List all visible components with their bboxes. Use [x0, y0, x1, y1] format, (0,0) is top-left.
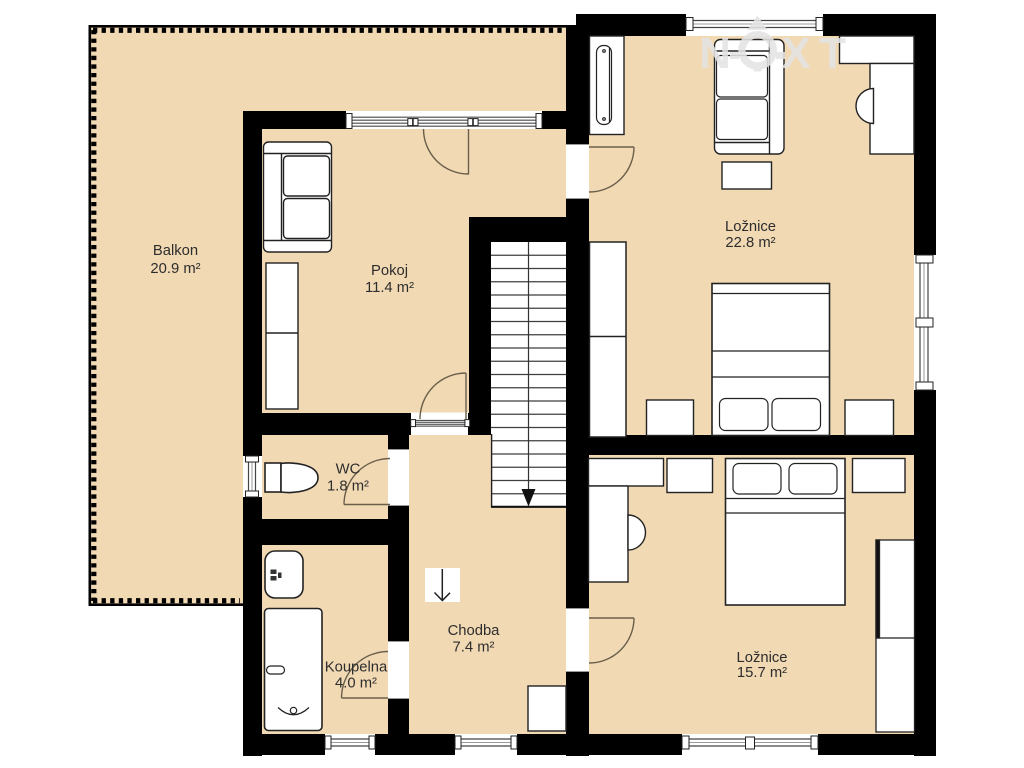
svg-text:Chodba: Chodba [448, 623, 501, 639]
svg-text:4.0 m²: 4.0 m² [335, 676, 377, 692]
svg-text:1.8 m²: 1.8 m² [327, 479, 369, 495]
svg-text:WC: WC [336, 462, 361, 478]
svg-text:N: N [699, 29, 731, 78]
svg-text:22.8 m²: 22.8 m² [725, 235, 775, 251]
svg-text:Ložnice: Ložnice [725, 219, 776, 235]
svg-text:Balkon: Balkon [153, 243, 198, 259]
svg-text:7.4 m²: 7.4 m² [453, 640, 495, 656]
svg-text:Koupelna: Koupelna [325, 660, 388, 676]
svg-text:Ložnice: Ložnice [736, 650, 787, 666]
svg-text:X: X [781, 29, 810, 78]
svg-text:15.7 m²: 15.7 m² [737, 665, 787, 681]
svg-text:T: T [819, 29, 846, 78]
svg-text:20.9 m²: 20.9 m² [150, 261, 200, 277]
svg-text:Pokoj: Pokoj [371, 263, 408, 279]
svg-text:11.4 m²: 11.4 m² [365, 280, 414, 296]
